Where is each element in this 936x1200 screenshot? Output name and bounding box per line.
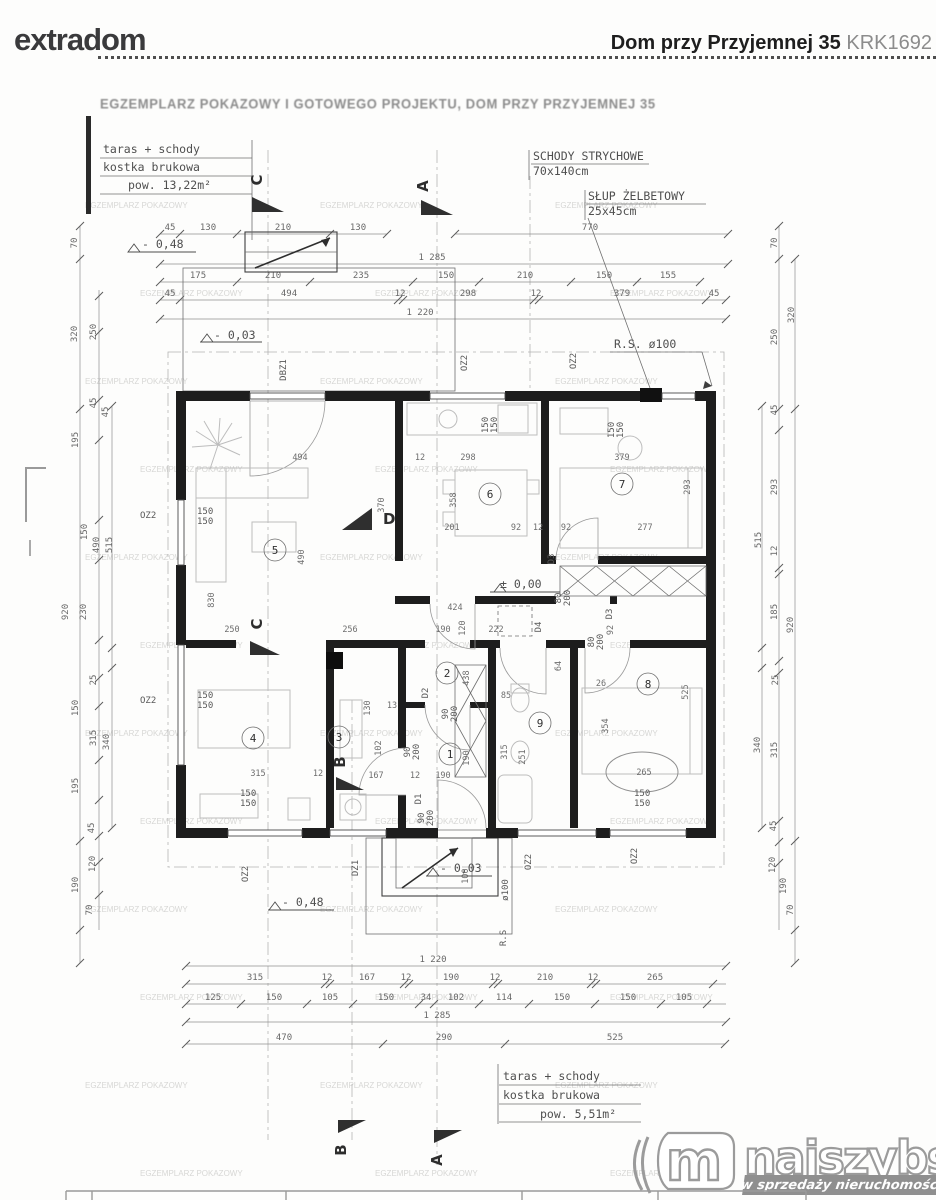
nightstand bbox=[288, 798, 310, 820]
chimney bbox=[326, 652, 343, 669]
dim-label: 494 bbox=[281, 289, 297, 299]
watermark-text: EGZEMPLARZ POKAZOWY bbox=[555, 905, 658, 914]
chair bbox=[527, 480, 539, 494]
dim-label: 320 bbox=[787, 307, 797, 323]
attic-note-line2: 70x140cm bbox=[533, 164, 588, 178]
terrace-bottom-note-line1: taras + schody bbox=[503, 1069, 600, 1083]
terrace-bottom-note-line3: pow. 5,51m² bbox=[540, 1107, 616, 1121]
dim-label: 130 bbox=[350, 223, 366, 233]
dim-label: 222 bbox=[488, 625, 503, 635]
watermark-text: EGZEMPLARZ POKAZOWY bbox=[320, 201, 423, 210]
dim-label: 45 bbox=[89, 398, 99, 409]
dim-label: 298 bbox=[460, 289, 476, 299]
window-label-oz2: OZ2 bbox=[241, 866, 251, 882]
section-marker-b-mid: B bbox=[331, 756, 349, 767]
dim-label: 230 bbox=[79, 604, 89, 620]
toilet bbox=[511, 688, 529, 712]
column-note-line1: SŁUP ŻELBETOWY bbox=[588, 188, 685, 203]
watermark-text: EGZEMPLARZ POKAZOWY bbox=[375, 1169, 478, 1178]
dim-label: 210 bbox=[517, 271, 533, 281]
dim-label: 293 bbox=[770, 479, 780, 495]
level-markers: ± 0,00 - 0,03 - 0,48 - 0,03 - 0,48 ø100 … bbox=[128, 237, 560, 946]
section-flag bbox=[434, 1130, 462, 1143]
watermark-text: EGZEMPLARZ POKAZOWY bbox=[610, 817, 713, 826]
dim-label: 315 bbox=[250, 769, 265, 779]
window-oz2 bbox=[518, 830, 596, 836]
window-size: 150150 bbox=[197, 507, 213, 527]
watermark-text: EGZEMPLARZ POKAZOWY bbox=[320, 553, 423, 562]
watermark-text: EGZEMPLARZ POKAZOWY bbox=[140, 1169, 243, 1178]
wall bbox=[176, 391, 186, 500]
level-minus-003: - 0,03 bbox=[214, 328, 256, 342]
wall bbox=[176, 828, 228, 838]
dim-label: 195 bbox=[71, 778, 81, 794]
dim-label: 358 bbox=[449, 492, 459, 507]
dim-label: 190 bbox=[435, 625, 450, 635]
dim-label: 1 220 bbox=[419, 955, 446, 965]
dim-label: 830 bbox=[207, 592, 217, 607]
wall bbox=[470, 702, 488, 708]
dim-label: 70 bbox=[770, 238, 780, 249]
dim-label: 1 285 bbox=[418, 253, 445, 263]
window-oz1 bbox=[330, 830, 386, 836]
kitchen-counter bbox=[407, 403, 537, 435]
section-marker-a-top: A bbox=[414, 180, 432, 192]
dim-label: 320 bbox=[70, 326, 80, 342]
wall bbox=[176, 565, 186, 645]
dim-label: 293 bbox=[683, 479, 693, 494]
najszybsi-logo: m najszybsi w sprzedaży nieruchomości bbox=[634, 1130, 936, 1195]
section-marker-c-mid: C bbox=[248, 618, 266, 629]
wall bbox=[630, 640, 716, 648]
washing-machine bbox=[340, 794, 366, 820]
dim-label: 277 bbox=[637, 523, 652, 533]
watermark-text: EGZEMPLARZ POKAZOWY bbox=[85, 905, 188, 914]
door-swing-room8 bbox=[585, 648, 630, 693]
section-flag bbox=[338, 1120, 366, 1133]
watermark-text: EGZEMPLARZ POKAZOWY bbox=[320, 1081, 423, 1090]
terrace-bottom-note-line2: kostka brukowa bbox=[503, 1088, 600, 1102]
wall bbox=[186, 640, 236, 648]
dim-label: 1 220 bbox=[406, 308, 433, 318]
dim-label: 315 bbox=[247, 973, 263, 983]
door-swing-bath bbox=[500, 648, 546, 694]
watermark-text: EGZEMPLARZ POKAZOWY bbox=[320, 377, 423, 386]
dim-label: 155 bbox=[660, 271, 676, 281]
door-label-d2: D2 bbox=[421, 688, 431, 699]
dim-label: 250 bbox=[89, 324, 99, 340]
dim-label: 210 bbox=[537, 973, 553, 983]
watermark-text: EGZEMPLARZ POKAZOWY bbox=[610, 465, 713, 474]
logo-accent bbox=[634, 1140, 642, 1190]
floor-plan-drawing: EGZEMPLARZ POKAZOWYEGZEMPLARZ POKAZOWYEG… bbox=[0, 0, 936, 1200]
column-note-line2: 25x45cm bbox=[588, 204, 637, 218]
plant bbox=[192, 418, 242, 469]
chair bbox=[443, 480, 455, 494]
dim-label: 250 bbox=[224, 625, 239, 635]
room-number-2: 2 bbox=[444, 667, 451, 680]
room-number-5: 5 bbox=[272, 544, 279, 557]
dim-label: 167 bbox=[368, 771, 383, 781]
dim-label: 490 bbox=[92, 537, 102, 553]
window-label-dbz1: DBZ1 bbox=[279, 359, 289, 381]
dim-label: 13 bbox=[387, 701, 397, 711]
dim-label: 525 bbox=[681, 684, 691, 699]
kitchen-sink bbox=[439, 410, 457, 428]
dim-label: 190 bbox=[71, 877, 81, 893]
porch-outline bbox=[366, 838, 512, 934]
room-number-9: 9 bbox=[537, 717, 544, 730]
rs-note: R.S. ø100 bbox=[614, 337, 676, 351]
wall bbox=[486, 828, 518, 838]
level-minus-048: - 0,48 bbox=[142, 237, 184, 251]
watermark-text: EGZEMPLARZ POKAZOWY bbox=[85, 729, 188, 738]
dim-label: 251 bbox=[518, 749, 528, 764]
dim-label: 64 bbox=[554, 661, 564, 671]
desk bbox=[560, 408, 608, 434]
dim-label: 340 bbox=[102, 734, 112, 750]
dim-label: 315 bbox=[500, 744, 510, 759]
wall bbox=[302, 828, 330, 838]
door-label-d3: D3 bbox=[547, 554, 557, 565]
room-number-6: 6 bbox=[487, 488, 494, 501]
dim-label: 250 bbox=[770, 329, 780, 345]
window-oz2 bbox=[178, 645, 184, 765]
dim-label: 102 bbox=[374, 740, 384, 755]
dim-label: 175 bbox=[190, 271, 206, 281]
window-size: 150150 bbox=[197, 691, 213, 711]
dim-label: 45 bbox=[165, 223, 176, 233]
dim-label: 256 bbox=[342, 625, 357, 635]
section-marker-d: D bbox=[383, 510, 395, 528]
dim-label: 315 bbox=[89, 730, 99, 746]
room-number-1: 1 bbox=[447, 748, 454, 761]
dim-label: 167 bbox=[359, 973, 375, 983]
dim-label: 45 bbox=[709, 289, 720, 299]
dim-label: 26 bbox=[596, 679, 606, 689]
dim-label: 424 bbox=[447, 603, 462, 613]
dim-label: 12 bbox=[410, 771, 420, 781]
window-oz2 bbox=[662, 393, 695, 399]
level-zero: ± 0,00 bbox=[500, 577, 542, 591]
dim-label: 12 bbox=[533, 523, 543, 533]
dim-label: 920 bbox=[61, 604, 71, 620]
wall bbox=[176, 765, 186, 838]
dim-label: 150 bbox=[554, 993, 570, 1003]
dim-label: 354 bbox=[601, 718, 611, 733]
door-size: 90200 bbox=[417, 810, 436, 826]
dim-label: 45 bbox=[87, 823, 97, 834]
wardrobe-hatch bbox=[560, 566, 706, 596]
dim-label: 1 285 bbox=[423, 1011, 450, 1021]
watermark-text: EGZEMPLARZ POKAZOWY bbox=[85, 553, 188, 562]
room-number-3: 3 bbox=[336, 731, 343, 744]
scan-bar bbox=[86, 116, 91, 214]
logo-m-glyph: m bbox=[666, 1130, 722, 1193]
wall bbox=[395, 596, 430, 604]
stove bbox=[498, 405, 528, 433]
window-label-oz2: OZ2 bbox=[460, 355, 470, 371]
scanned-blueprint-page: extradom Dom przy Przyjemnej 35 KRK1692 … bbox=[0, 0, 936, 1200]
dim-label: 12 bbox=[415, 453, 425, 463]
level-minus-048-bottom: - 0,48 bbox=[282, 895, 324, 909]
wall bbox=[570, 648, 578, 828]
dim-label: 150 bbox=[438, 271, 454, 281]
dim-label: 105 bbox=[676, 993, 692, 1003]
dim-label: 150 bbox=[596, 271, 612, 281]
wall bbox=[176, 391, 250, 401]
door-label-d3: D3 bbox=[605, 609, 615, 620]
dim-label: 315 bbox=[770, 742, 780, 758]
arrowhead bbox=[321, 238, 330, 247]
wall bbox=[706, 391, 716, 838]
door-size: 80200 bbox=[587, 634, 606, 650]
dim-label: 190 bbox=[462, 750, 472, 765]
window-dbz1 bbox=[250, 393, 325, 399]
window-label-oz2: OZ2 bbox=[524, 854, 534, 870]
scan-artifacts bbox=[26, 116, 91, 556]
dim-label: 130 bbox=[200, 223, 216, 233]
door-size: 90200 bbox=[441, 706, 460, 722]
watermark-text: EGZEMPLARZ POKAZOWY bbox=[140, 993, 243, 1002]
bed-room7 bbox=[560, 468, 702, 548]
dim-label: 290 bbox=[436, 1033, 452, 1043]
dim-label: 120 bbox=[458, 620, 468, 635]
dim-label: 494 bbox=[292, 453, 307, 463]
stairs-arrow bbox=[255, 238, 330, 268]
window-label-oz2: OZ2 bbox=[140, 696, 156, 706]
dim-label: 125 bbox=[205, 993, 221, 1003]
dim-label: 340 bbox=[753, 737, 763, 753]
dim-label: 70 bbox=[70, 238, 80, 249]
window-label-oz2: OZ2 bbox=[630, 848, 640, 864]
section-marker-a-bottom: A bbox=[428, 1154, 446, 1166]
dim-label: 150 bbox=[80, 524, 90, 540]
dim-label: 92 bbox=[511, 523, 521, 533]
door-label-d1: D1 bbox=[414, 794, 424, 805]
room-number-4: 4 bbox=[250, 732, 257, 745]
watermark-text: EGZEMPLARZ POKAZOWY bbox=[85, 1081, 188, 1090]
dim-label: 190 bbox=[779, 878, 789, 894]
terrace-note-line3: pow. 13,22m² bbox=[128, 178, 211, 192]
window-oz2 bbox=[610, 830, 686, 836]
window-size: 150150 bbox=[607, 422, 626, 438]
section-flag bbox=[250, 641, 280, 655]
dim-label: 114 bbox=[496, 993, 512, 1003]
terrace-note-line2: kostka brukowa bbox=[103, 160, 200, 174]
wall bbox=[598, 556, 716, 564]
door-label-dz1: DZ1 bbox=[351, 860, 361, 876]
entrance-porch bbox=[366, 838, 512, 934]
dim-label: 185 bbox=[770, 604, 780, 620]
pipe-diameter: ø100 bbox=[501, 879, 511, 901]
dim-label: 92 bbox=[561, 523, 571, 533]
dim-label: 235 bbox=[353, 271, 369, 281]
dim-label: 490 bbox=[297, 549, 307, 564]
dim-label: 515 bbox=[105, 537, 115, 553]
dim-label: 265 bbox=[647, 973, 663, 983]
watermark-text: EGZEMPLARZ POKAZOWY bbox=[555, 377, 658, 386]
dim-label: 70 bbox=[85, 905, 95, 916]
dimension-chains: 45 130 210 130 770 1 285 175 210 235 150… bbox=[61, 222, 799, 1048]
wall bbox=[505, 391, 662, 401]
scan-mark bbox=[26, 468, 46, 522]
dim-label: 130 bbox=[363, 700, 373, 715]
logo-ribbon: w sprzedaży nieruchomości bbox=[739, 1175, 936, 1195]
dim-label: 105 bbox=[322, 993, 338, 1003]
dim-label: 265 bbox=[636, 768, 651, 778]
level-minus-003-bottom: - 0,03 bbox=[440, 861, 482, 875]
dim-label: 190 bbox=[443, 973, 459, 983]
watermark-text: EGZEMPLARZ POKAZOWY bbox=[320, 905, 423, 914]
dim-label: 92 bbox=[606, 625, 616, 635]
dim-label: 70 bbox=[786, 905, 796, 916]
dim-label: 150 bbox=[266, 993, 282, 1003]
watermark-text: EGZEMPLARZ POKAZOWY bbox=[85, 201, 188, 210]
dim-label: 150 bbox=[620, 993, 636, 1003]
dim-label: 195 bbox=[71, 432, 81, 448]
wall bbox=[395, 401, 403, 561]
dim-label: 379 bbox=[614, 289, 630, 299]
attic-note-line1: SCHODY STRYCHOWE bbox=[533, 149, 644, 163]
wall bbox=[326, 648, 334, 828]
section-marker-b-bottom: B bbox=[332, 1144, 350, 1155]
window-label-oz2: OZ2 bbox=[140, 511, 156, 521]
dim-label: 150 bbox=[71, 700, 81, 716]
window-size: 150150 bbox=[240, 789, 256, 809]
wall bbox=[386, 828, 438, 838]
dim-label: 150 bbox=[378, 993, 394, 1003]
section-flag bbox=[342, 508, 372, 530]
dim-label: 85 bbox=[501, 691, 511, 701]
dim-label: 102 bbox=[448, 993, 464, 1003]
dim-label: 12 bbox=[770, 546, 780, 557]
wall bbox=[475, 596, 556, 604]
watermark-text: EGZEMPLARZ POKAZOWY bbox=[140, 289, 243, 298]
section-marker-c-top: C bbox=[248, 174, 266, 185]
wall bbox=[398, 648, 406, 748]
dim-label: 470 bbox=[276, 1033, 292, 1043]
rc-column bbox=[640, 388, 662, 402]
wall bbox=[686, 828, 716, 838]
dim-label: 190 bbox=[435, 771, 450, 781]
door-label-d4: D4 bbox=[534, 622, 544, 633]
wall bbox=[610, 596, 617, 604]
washing-machine-drum bbox=[345, 799, 361, 815]
window-size: 150150 bbox=[634, 789, 650, 809]
terrace-note-line1: taras + schody bbox=[103, 142, 200, 156]
room-number-8: 8 bbox=[645, 678, 652, 691]
dim-label: 45 bbox=[165, 289, 176, 299]
rs-label: R.S bbox=[499, 930, 509, 946]
wall bbox=[488, 648, 496, 828]
window-oz2 bbox=[430, 393, 505, 399]
wall bbox=[326, 640, 425, 648]
dim-label: 12 bbox=[313, 769, 323, 779]
dim-label: 515 bbox=[754, 532, 764, 548]
dim-label: 920 bbox=[786, 617, 796, 633]
wall bbox=[546, 640, 585, 648]
wall bbox=[325, 391, 430, 401]
dim-label: 525 bbox=[607, 1033, 623, 1043]
watermark-text: EGZEMPLARZ POKAZOWY bbox=[85, 377, 188, 386]
wall bbox=[470, 640, 500, 648]
window-oz2 bbox=[178, 500, 184, 565]
logo-accent bbox=[642, 1137, 650, 1193]
wall bbox=[403, 702, 425, 708]
dim-label: 201 bbox=[444, 523, 459, 533]
dim-label: 438 bbox=[462, 670, 472, 685]
dim-label: 298 bbox=[460, 453, 475, 463]
watermark-text: EGZEMPLARZ POKAZOWY bbox=[140, 465, 243, 474]
window-label-oz2: OZ2 bbox=[569, 353, 579, 369]
bathtub bbox=[498, 775, 532, 823]
wardrobe bbox=[560, 566, 706, 596]
wall bbox=[596, 828, 610, 838]
wall bbox=[398, 795, 406, 828]
window-oz2 bbox=[228, 830, 302, 836]
terrace-door-swing bbox=[250, 401, 325, 476]
window-size: 150150 bbox=[481, 417, 500, 433]
dim-label: 379 bbox=[614, 453, 629, 463]
room-number-7: 7 bbox=[619, 478, 626, 491]
